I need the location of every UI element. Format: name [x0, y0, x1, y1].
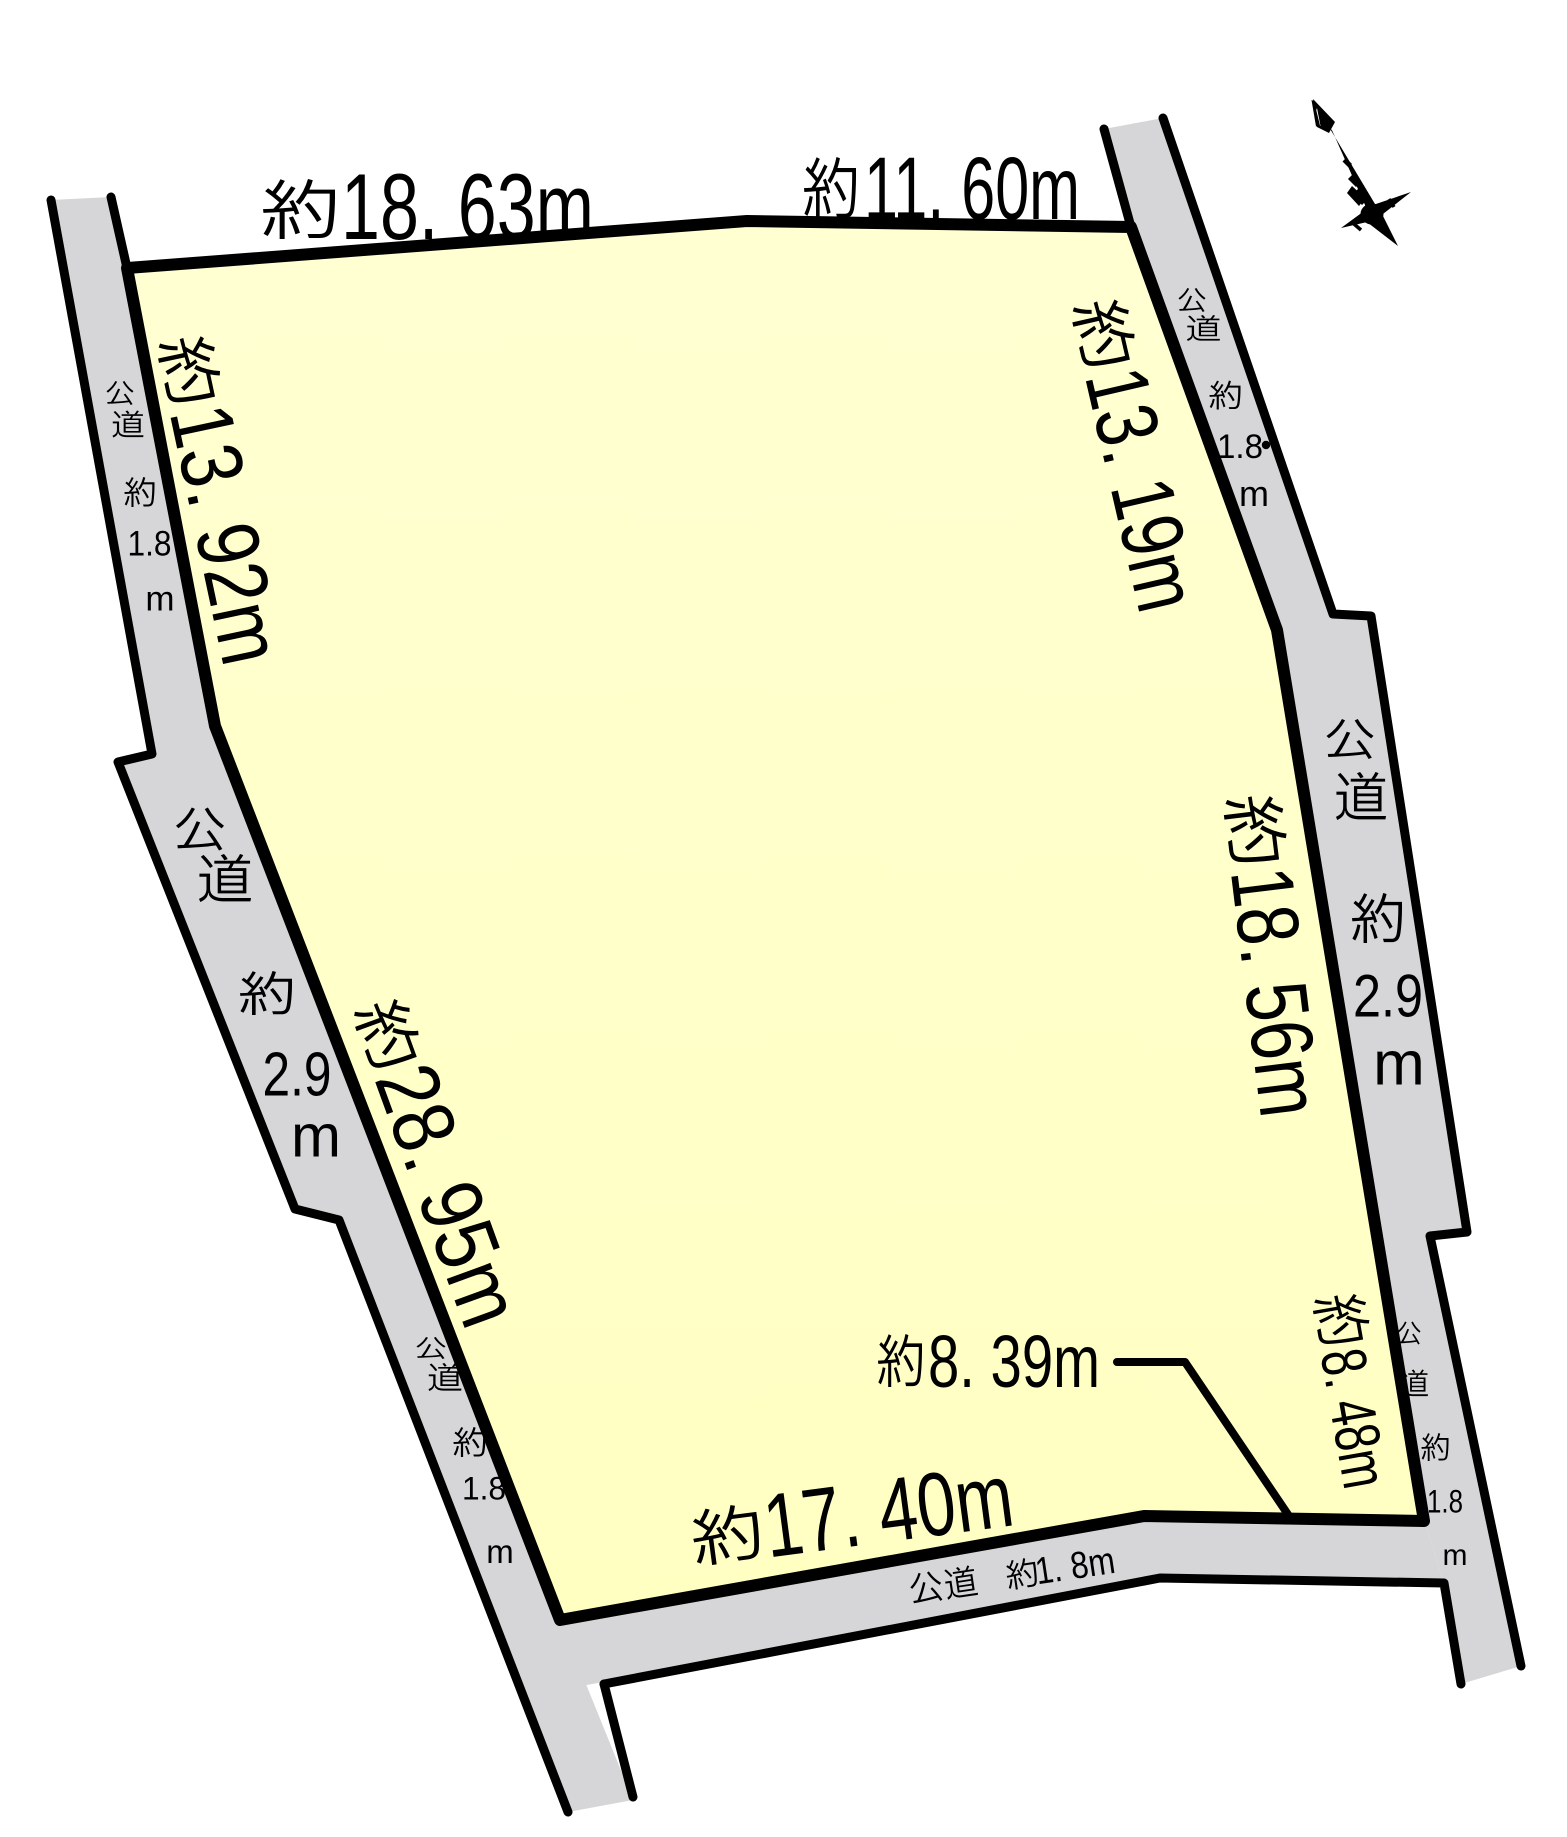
svg-text:1.8: 1.8	[462, 1471, 506, 1507]
svg-text:m: m	[145, 580, 174, 619]
svg-text:1.8: 1.8	[128, 525, 172, 564]
svg-text:1.8: 1.8	[1217, 428, 1263, 466]
svg-text:m: m	[1373, 1029, 1425, 1098]
svg-text:m: m	[1443, 1539, 1468, 1572]
svg-text:m: m	[1239, 473, 1269, 514]
svg-text:m: m	[486, 1533, 514, 1570]
svg-text:2.9: 2.9	[263, 1040, 332, 1109]
svg-text:1.8: 1.8	[1427, 1484, 1463, 1520]
svg-text:m: m	[291, 1103, 341, 1170]
svg-text:2.9: 2.9	[1353, 963, 1423, 1030]
svg-text:11. 60m: 11. 60m	[864, 138, 1080, 238]
svg-text:18. 63m: 18. 63m	[341, 154, 594, 259]
svg-text:8. 39m: 8. 39m	[928, 1320, 1100, 1403]
